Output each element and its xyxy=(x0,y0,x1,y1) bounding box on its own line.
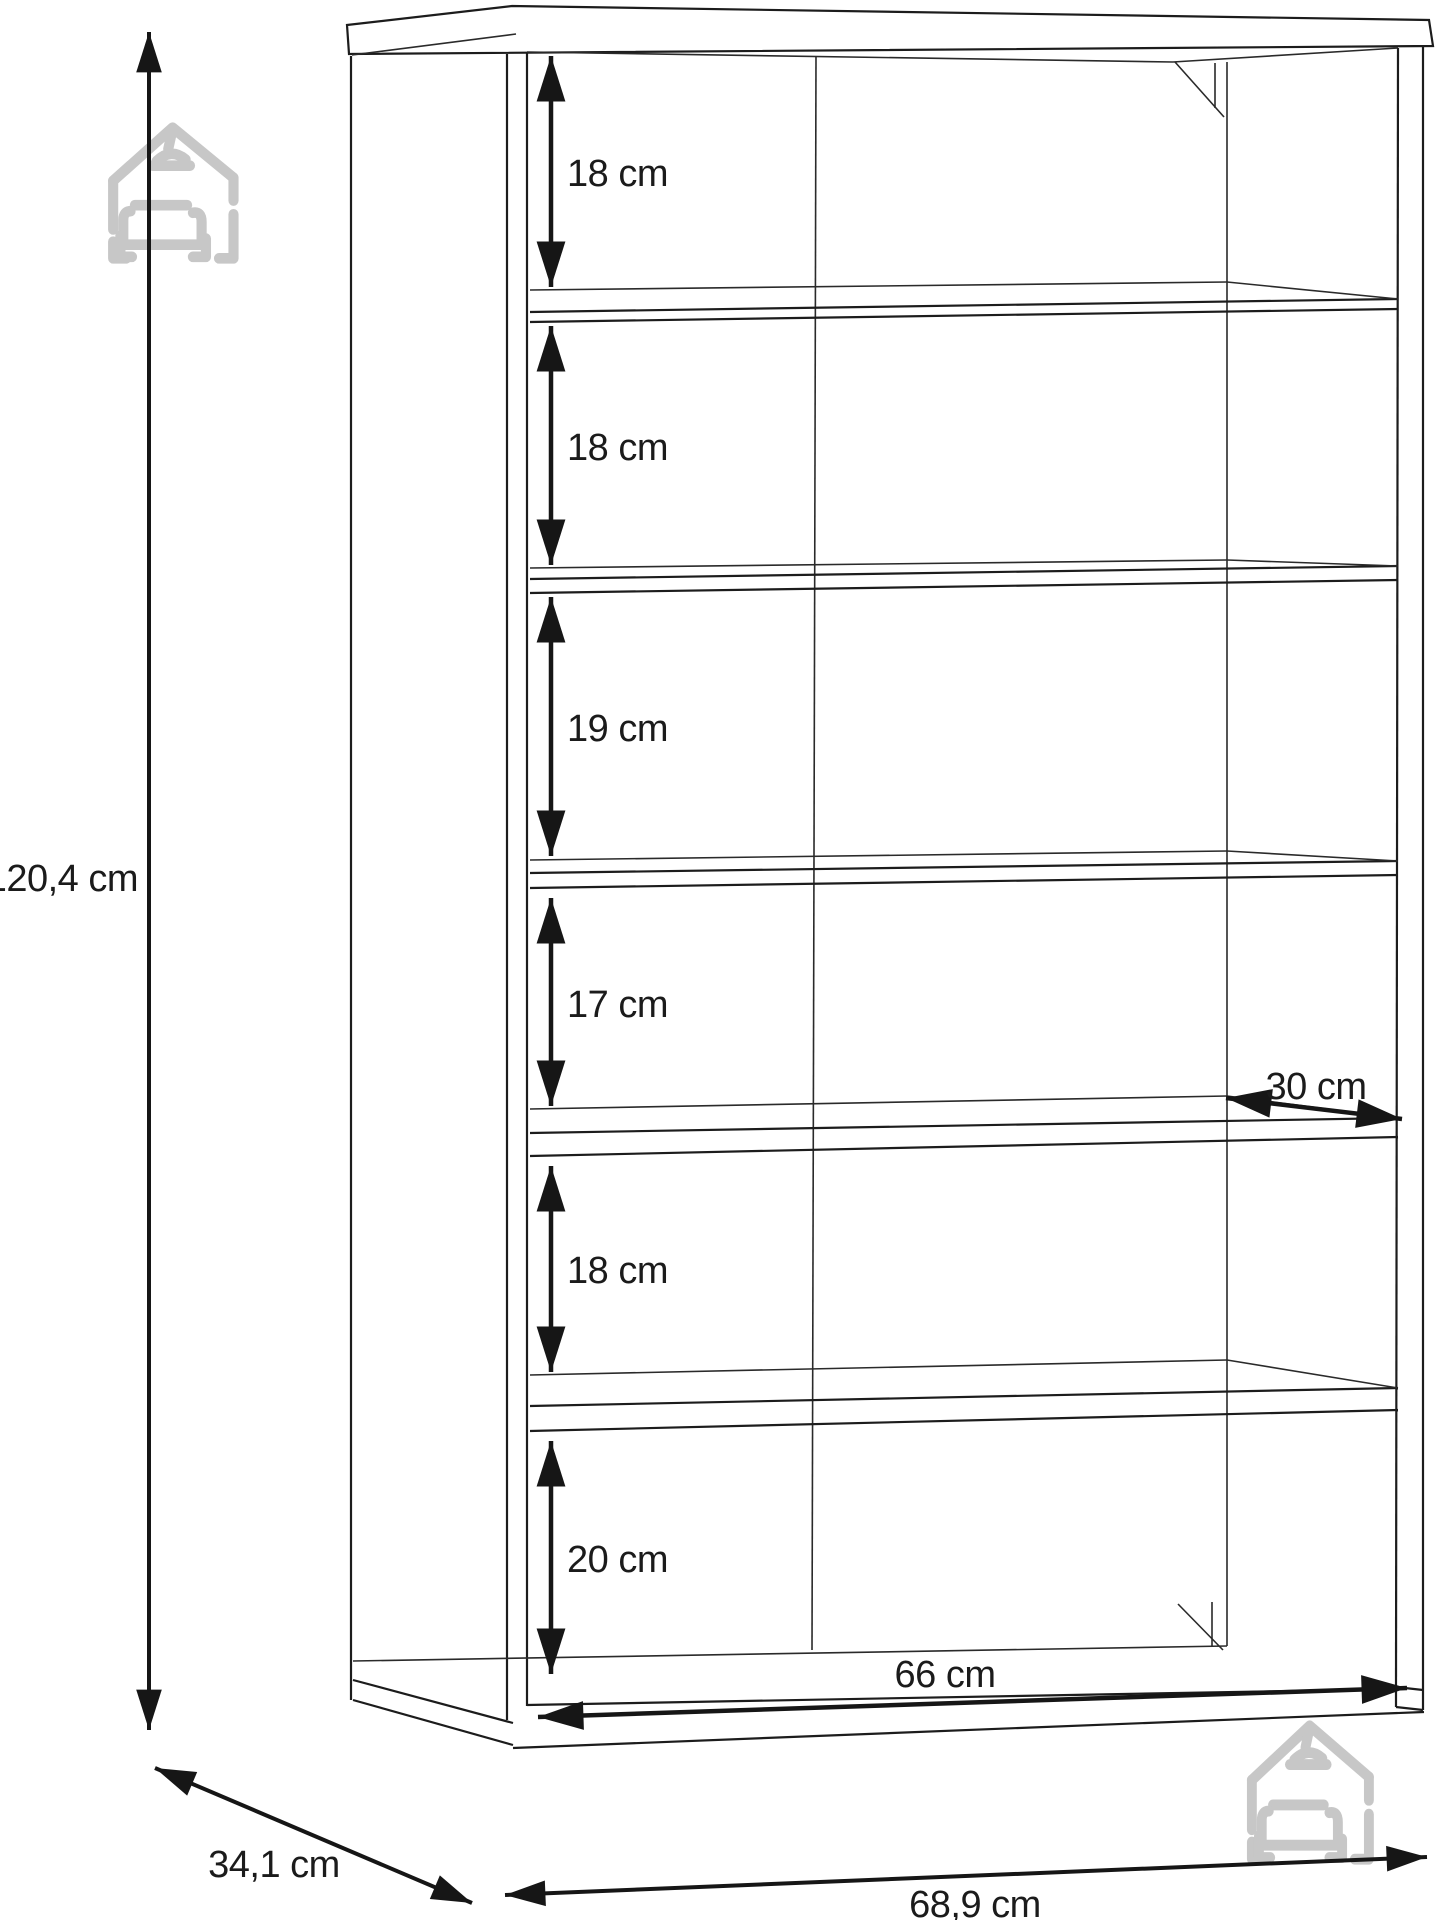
shelf xyxy=(530,851,1398,888)
compartment-dimension: 18 cm xyxy=(551,326,668,565)
left-side-panel xyxy=(351,53,527,1745)
height-dimension: 120,4 cm xyxy=(0,32,149,1730)
compartment-dimension: 17 cm xyxy=(551,898,668,1106)
top-panel-underside-edge xyxy=(1173,48,1398,62)
compartment-dimension: 20 cm xyxy=(551,1441,668,1674)
dimension-label: 68,9 cm xyxy=(909,1884,1041,1920)
dimension-drawing: 18 cm 18 cm 19 cm 17 cm 18 cm 20 cm 120,… xyxy=(0,0,1438,1920)
dimension-label: 18 cm xyxy=(567,153,668,195)
depth-dimension: 34,1 cm xyxy=(155,1768,472,1903)
compartment-dimension: 18 cm xyxy=(551,1166,668,1372)
dimension-label: 18 cm xyxy=(567,427,668,469)
compartment-dimension: 19 cm xyxy=(551,597,668,856)
dimension-label: 30 cm xyxy=(1266,1066,1367,1108)
cabinet-outline xyxy=(347,6,1433,1748)
brand-watermark-icon xyxy=(1252,1726,1369,1859)
shelf xyxy=(530,282,1398,322)
middle-divider xyxy=(812,56,816,1650)
top-panel xyxy=(347,6,1433,62)
diagram-page: 18 cm 18 cm 19 cm 17 cm 18 cm 20 cm 120,… xyxy=(0,0,1438,1920)
inner-width-dimension: 66 cm xyxy=(538,1654,1407,1717)
dimension-label: 120,4 cm xyxy=(0,858,138,900)
dimension-label: 66 cm xyxy=(895,1654,996,1696)
brand-watermark-icon xyxy=(113,128,233,259)
compartment-dimension: 18 cm xyxy=(551,56,668,287)
dimension-label: 18 cm xyxy=(567,1250,668,1292)
dimension-label: 17 cm xyxy=(567,984,668,1026)
shelf xyxy=(530,560,1398,593)
dimension-label: 34,1 cm xyxy=(208,1844,340,1886)
base-left-bottom-edge xyxy=(353,1700,513,1745)
top-corner-brace xyxy=(1175,62,1224,117)
ceiling-edge xyxy=(527,52,1173,62)
dimension-label: 20 cm xyxy=(567,1539,668,1581)
shelf xyxy=(530,1360,1398,1431)
dimension-label: 19 cm xyxy=(567,708,668,750)
outer-width-dimension: 68,9 cm xyxy=(505,1857,1427,1920)
bottom-panel xyxy=(353,1646,1424,1748)
base-left-top-edge xyxy=(353,1680,513,1723)
bottom-corner-brace xyxy=(1178,1602,1223,1650)
shelf-depth-dimension: 30 cm xyxy=(1226,1066,1402,1119)
